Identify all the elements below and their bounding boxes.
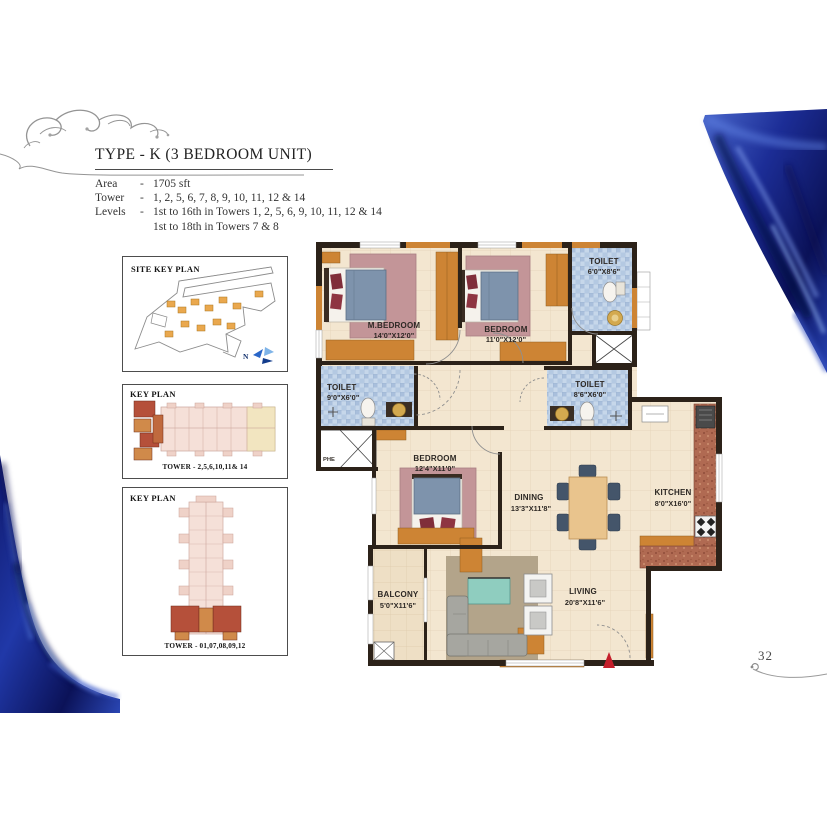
detail-sep: - [140, 205, 153, 219]
key-plan-bottom-box: KEY PLAN TOWER - 01 [122, 487, 288, 656]
detail-value: 1st to 16th in Towers 1, 2, 5, 6, 9, 10,… [153, 205, 382, 219]
detail-row-levels: Levels-1st to 16th in Towers 1, 2, 5, 6,… [95, 205, 382, 219]
room-dims-toilet2: 9'0"X6'0" [327, 393, 359, 402]
detail-row-tower: Tower-1, 2, 5, 6, 7, 8, 9, 10, 11, 12 & … [95, 191, 382, 205]
room-label-bedroom3: BEDROOM [413, 454, 456, 463]
room-label-mbedroom: M.BEDROOM [368, 321, 421, 330]
tv-unit [468, 578, 510, 604]
room-label-dining: DINING [514, 493, 543, 502]
room-dims-living: 20'8"X11'6" [565, 598, 605, 607]
detail-row-area: Area-1705 sft [95, 177, 382, 191]
duct-shaft [594, 334, 634, 364]
site-key-plan-drawing: SITE KEY PLAN N [123, 257, 287, 371]
detail-label: Area [95, 177, 140, 191]
compass-rose: N [243, 347, 274, 364]
unit-details: Area-1705 sft Tower-1, 2, 5, 6, 7, 8, 9,… [95, 177, 382, 234]
room-dims-toilet3: 8'6"X6'0" [574, 390, 606, 399]
washer-box [374, 642, 394, 660]
key-plan-top-box: KEY PLAN TOWER - 2,5, [122, 384, 288, 479]
room-dims-bedroom3: 12'4"X11'0" [415, 464, 455, 473]
key-plan-title: KEY PLAN [130, 389, 176, 399]
detail-value: 1705 sft [153, 177, 190, 191]
brochure-page: TYPE - K (3 BEDROOM UNIT) Area-1705 sft … [0, 0, 827, 827]
room-label-kitchen: KITCHEN [655, 488, 692, 497]
site-buildings [165, 291, 263, 337]
tower-label: TOWER - 2,5,6,10,11& 14 [163, 463, 248, 471]
room-label-toilet1: TOILET [589, 257, 619, 266]
phe-shaft: PHE [320, 430, 376, 468]
room-label-living: LIVING [569, 587, 597, 596]
room-label-balcony: BALCONY [378, 590, 419, 599]
mbedroom-bed [324, 268, 386, 322]
detail-sep: - [140, 191, 153, 205]
detail-value: 1st to 18th in Towers 7 & 8 [153, 220, 279, 234]
room-label-toilet2: TOILET [327, 383, 357, 392]
title-underline [95, 169, 333, 170]
detail-value: 1, 2, 5, 6, 7, 8, 9, 10, 11, 12 & 14 [153, 191, 305, 205]
fridge [696, 406, 715, 428]
floor-plan: PHE [310, 230, 740, 670]
detail-label: Levels [95, 205, 140, 219]
room-label-bedroom2: BEDROOM [484, 325, 527, 334]
satin-fabric-left [0, 443, 122, 715]
planter-ledge [637, 272, 650, 330]
room-dims-kitchen: 8'0"X16'0" [655, 499, 692, 508]
key-plan-top-drawing: KEY PLAN TOWER - 2,5, [123, 385, 287, 478]
hob [695, 516, 716, 537]
site-key-plan-box: SITE KEY PLAN N [122, 256, 288, 372]
room-dims-bedroom2: 11'0"X12'0" [486, 335, 526, 344]
room-label-toilet3: TOILET [575, 380, 605, 389]
site-boundary [135, 267, 275, 357]
bedroom3-bed [412, 474, 462, 536]
room-dims-toilet1: 6'0"X8'6" [588, 267, 620, 276]
room-dims-dining: 13'3"X11'8" [511, 504, 551, 513]
bedroom2-bed [460, 270, 518, 322]
kitchen-counter-bottom [640, 546, 718, 568]
detail-label: Tower [95, 191, 140, 205]
detail-label [95, 220, 140, 234]
detail-sep: - [140, 177, 153, 191]
compass-n-label: N [243, 352, 249, 361]
highlighted-units [171, 606, 241, 640]
room-dims-balcony: 5'0"X11'6" [380, 601, 416, 610]
satin-fabric-top-right [677, 105, 827, 385]
room-dims-mbedroom: 14'0"X12'0" [374, 331, 415, 340]
site-key-plan-title: SITE KEY PLAN [131, 264, 200, 274]
phe-label: PHE [323, 457, 335, 463]
tower-label: TOWER - 01,07,08,09,12 [165, 642, 246, 650]
page-number-swirl [738, 656, 827, 684]
detail-sep [140, 220, 153, 234]
page-title: TYPE - K (3 BEDROOM UNIT) [95, 146, 312, 164]
kitchen-counter-right [694, 404, 718, 568]
key-plan-title: KEY PLAN [130, 493, 176, 503]
key-plan-bottom-drawing: KEY PLAN TOWER - 01 [123, 488, 287, 655]
highlighted-units [134, 401, 163, 460]
